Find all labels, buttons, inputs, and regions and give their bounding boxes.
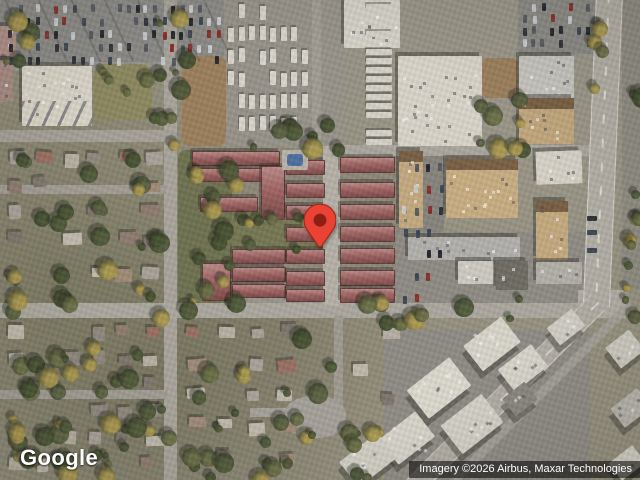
parked-car [118,4,122,12]
tree [474,99,488,113]
house [118,406,132,417]
parked-car [569,3,573,11]
rooftop-unit [554,250,557,253]
house [146,151,164,165]
rooftop-unit [411,130,414,133]
tree [97,260,117,280]
rooftop-unit [512,268,515,271]
tree [3,58,10,65]
parked-car [207,30,211,38]
parked-car [415,164,419,172]
parked-car [64,43,68,51]
tree [507,141,522,156]
rooftop-unit [535,106,538,109]
rooftop-unit [492,191,495,194]
parked-car [100,19,104,27]
parked-car [523,15,527,23]
tree [172,69,179,76]
rooftop-unit [62,92,65,95]
rooftop-unit [419,86,422,89]
rooftop-unit [469,96,472,99]
tree [626,240,636,250]
house [353,364,368,376]
tree [251,471,269,480]
rooftop-unit [468,133,471,136]
house [87,152,100,162]
parked-car [8,30,12,38]
parked-car [415,294,419,302]
house [249,422,266,436]
rooftop-unit [551,206,554,209]
tree [149,112,161,124]
parked-car [161,57,165,65]
parked-car [440,185,444,193]
rooftop-unit [404,219,407,222]
rooftop-unit [550,71,553,74]
rooftop-unit [568,269,571,272]
parked-car [197,45,201,53]
parked-car [586,4,590,12]
parked-car [532,26,536,34]
trailer [260,26,266,40]
parked-car [127,43,131,51]
parked-car [91,4,95,12]
trailer [281,94,287,108]
house [142,266,160,279]
parked-car [143,32,147,40]
apartment-building [340,270,395,286]
house [144,377,156,391]
trailer [260,51,266,65]
rooftop-unit [550,178,553,181]
tree [292,245,301,254]
house [119,355,132,365]
tree [38,367,59,388]
trailer [260,116,266,130]
parked-car [153,5,157,13]
tree [414,308,429,323]
tree [205,472,216,480]
rooftop-unit [541,210,544,213]
tree [8,423,26,441]
parked-car [152,30,156,38]
parked-car [81,57,85,65]
rooftop-unit [541,270,544,273]
swimming-pool [287,154,303,166]
parked-car [523,28,527,36]
trailer [281,73,287,87]
tree [97,467,115,480]
trailer [249,26,255,40]
tree [100,414,121,435]
rooftop-unit [414,116,417,119]
apartment-building [340,226,395,242]
rooftop-unit [67,78,70,81]
tree [320,118,335,133]
rooftop-unit [408,170,411,173]
rooftop-unit [423,82,426,85]
tree [156,19,163,26]
rooftop-unit [557,61,560,64]
parked-car [587,230,597,235]
house [185,327,199,338]
rooftop-unit [361,21,364,24]
trailer [260,95,266,109]
tree [622,296,629,303]
apartment-building [232,267,286,282]
parked-car [170,44,174,52]
rooftop-unit [431,104,434,107]
tree [198,282,215,299]
tree [332,143,346,157]
rooftop-unit [423,241,426,244]
rooftop-unit [550,235,553,238]
parked-car [428,206,432,214]
tree [168,139,179,150]
parked-car [208,45,212,53]
trailer [239,48,245,62]
tree [161,430,177,446]
trailer [228,50,234,64]
tree [622,284,630,292]
parked-car [533,16,537,24]
parked-car [99,44,103,52]
rooftop-unit [487,252,490,255]
parked-car [144,44,148,52]
rooftop-unit [445,76,448,79]
street [0,303,612,318]
trailer [366,103,392,109]
trailer [366,58,392,64]
rooftop-unit [559,247,562,250]
house [189,417,207,427]
apartment-building [340,248,395,264]
tree [125,152,141,168]
rooftop-unit [462,249,465,252]
parked-car [415,208,419,216]
parked-car [427,186,431,194]
tree [292,329,312,349]
trailer [270,71,276,85]
parked-car [217,17,221,25]
tree [80,165,98,183]
trailer [249,117,255,131]
trailer [281,27,287,41]
google-logo[interactable]: Google [20,445,98,471]
parked-car [163,17,167,25]
imagery-attribution: Imagery ©2026 Airbus, Maxar Technologies [409,461,640,478]
tree [454,298,473,317]
parked-car [532,4,536,12]
tree [132,183,145,196]
rooftop-unit [71,85,74,88]
parked-car [172,58,176,66]
tree [308,383,328,403]
parked-car [189,5,193,13]
house [36,151,53,163]
parked-car [542,3,546,11]
rooftop-unit [75,86,78,89]
trailer [366,4,392,10]
trailer [366,112,392,118]
house [89,432,102,445]
tree [82,357,97,372]
rooftop-unit [5,95,8,98]
parked-car [577,27,581,35]
rooftop-unit [556,131,559,134]
rooftop-unit [414,105,417,108]
building [519,98,574,144]
rooftop-unit [368,25,371,28]
rooftop-unit [474,207,477,210]
apartment-building [232,249,286,264]
parked-car [54,18,58,26]
parked-car [438,163,442,171]
rooftop-unit [514,249,517,252]
tree [149,232,165,248]
apartment-building [286,289,325,302]
house [278,360,296,374]
tree [214,425,222,433]
trailer [366,139,392,145]
tree [59,420,72,433]
trailer [270,95,276,109]
house [8,325,24,339]
rooftop-unit [465,265,468,268]
rooftop-unit [541,206,544,209]
parked-car [217,30,221,38]
parked-car [404,229,408,237]
tree [511,92,528,109]
tree [266,213,278,225]
trailer [366,49,392,55]
tree [217,275,230,288]
rooftop-unit [402,119,405,122]
rooftop-unit [545,88,548,91]
tree [157,405,166,414]
house [8,231,23,243]
rooftop-unit [376,16,379,19]
parked-car [568,16,572,24]
tree [271,123,288,140]
parked-car [108,57,112,65]
rooftop-unit [462,210,465,213]
rooftop-unit [571,177,574,180]
parked-car [127,5,131,13]
tree [171,80,191,100]
building [610,388,640,428]
parked-car [55,44,59,52]
house [247,391,259,401]
rooftop-unit [466,188,469,191]
rooftop-unit [484,190,487,193]
rooftop-unit [505,183,508,186]
building [496,261,528,290]
parked-car [426,273,430,281]
rooftop-unit [403,77,406,80]
rooftop-unit [360,31,363,34]
tree [515,118,525,128]
trailer [270,28,276,42]
rooftop-unit [453,175,456,178]
rooftop-unit [25,93,28,96]
pin-dot [314,214,327,227]
tree [253,215,264,226]
rooftop-unit [509,197,512,200]
parked-car [73,5,77,13]
parked-car [171,31,175,39]
rooftop-unit [453,92,456,95]
apartment-building [261,166,285,220]
trailer [366,76,392,82]
parked-car [109,44,113,52]
trailer [239,27,245,41]
rooftop-unit [467,102,470,105]
parked-car [559,26,563,34]
rooftop-unit [43,84,46,87]
location-pin-icon[interactable] [304,204,336,247]
parked-car [531,39,535,47]
tree [260,437,271,448]
trailer [239,4,245,18]
parked-car [403,296,407,304]
satellite-map[interactable]: Google Imagery ©2026 Airbus, Maxar Techn… [0,0,640,480]
parked-car [36,17,40,25]
parked-car [144,18,148,26]
parked-car [188,30,192,38]
parked-car [402,206,406,214]
tree [219,160,239,180]
tree [35,427,53,445]
trailer [270,49,276,63]
rooftop-unit [467,204,470,207]
house [141,204,160,215]
parked-car [179,32,183,40]
house [33,177,47,188]
rooftop-unit [562,64,565,67]
parked-car [136,5,140,13]
trailer [239,117,245,131]
rooftop-unit [501,178,504,181]
rooftop-unit [450,182,453,185]
parked-car [587,248,597,253]
parked-car [100,30,104,38]
trailer [249,95,255,109]
rooftop-unit [557,156,560,159]
parked-car [143,5,147,13]
parked-car [36,4,40,12]
tree [283,389,291,397]
tree [53,267,70,284]
rooftop-unit [502,278,505,281]
rooftop-unit [431,95,434,98]
rooftop-unit [556,137,559,140]
rooftop-unit [62,82,65,85]
tree [227,294,246,313]
rooftop-unit [447,250,450,253]
parked-car [163,32,167,40]
rooftop-unit [559,275,562,278]
rooftop-unit [567,172,570,175]
rooftop-unit [426,124,429,127]
trailer [291,72,297,86]
parked-car [189,18,193,26]
apartment-building [340,204,395,220]
house [119,232,138,243]
parked-car [540,39,544,47]
rooftop-unit [475,74,478,77]
house [219,327,236,338]
building [446,159,518,218]
rooftop-unit [575,273,578,276]
tree [282,458,294,470]
tree [132,349,143,360]
tree [102,452,109,459]
tree [350,467,364,480]
house [93,327,105,341]
tree [302,138,323,159]
trailer [291,49,297,63]
tree [214,453,234,473]
tree [231,409,238,416]
tree [119,369,139,389]
rooftop-unit [572,171,575,174]
parked-car [415,273,419,281]
tree [628,310,640,325]
parked-car [63,5,67,13]
rooftop-unit [492,250,495,253]
parked-car [9,44,13,52]
tree [138,243,145,250]
rooftop-unit [530,76,533,79]
rooftop-unit [446,244,449,247]
parked-car [427,250,431,258]
rooftop-unit [27,72,30,75]
tree [506,315,514,323]
parked-car [72,56,76,64]
parked-car [62,17,66,25]
parked-car [108,30,112,38]
apartment-building [286,271,325,286]
trailer [260,6,266,20]
house [382,394,394,405]
parked-car [28,57,32,65]
tree [170,9,189,28]
trailer [291,27,297,41]
rooftop-unit [512,201,515,204]
rooftop-unit [54,82,57,85]
parked-car [550,28,554,36]
tree [119,442,129,452]
tree [123,88,132,97]
trailer [228,28,234,42]
parked-car [586,27,590,35]
rooftop-unit [437,126,440,129]
rooftop-unit [467,276,470,279]
rooftop-unit [469,86,472,89]
building [605,330,640,369]
parked-car [439,207,443,215]
apartment-building [340,157,395,173]
parked-car [215,56,219,64]
house [9,204,22,219]
trailer [366,94,392,100]
apartment-building [340,182,395,198]
rooftop-unit [395,26,398,29]
terrain-patch [482,58,518,98]
parked-car [416,230,420,238]
rooftop-unit [405,117,408,120]
